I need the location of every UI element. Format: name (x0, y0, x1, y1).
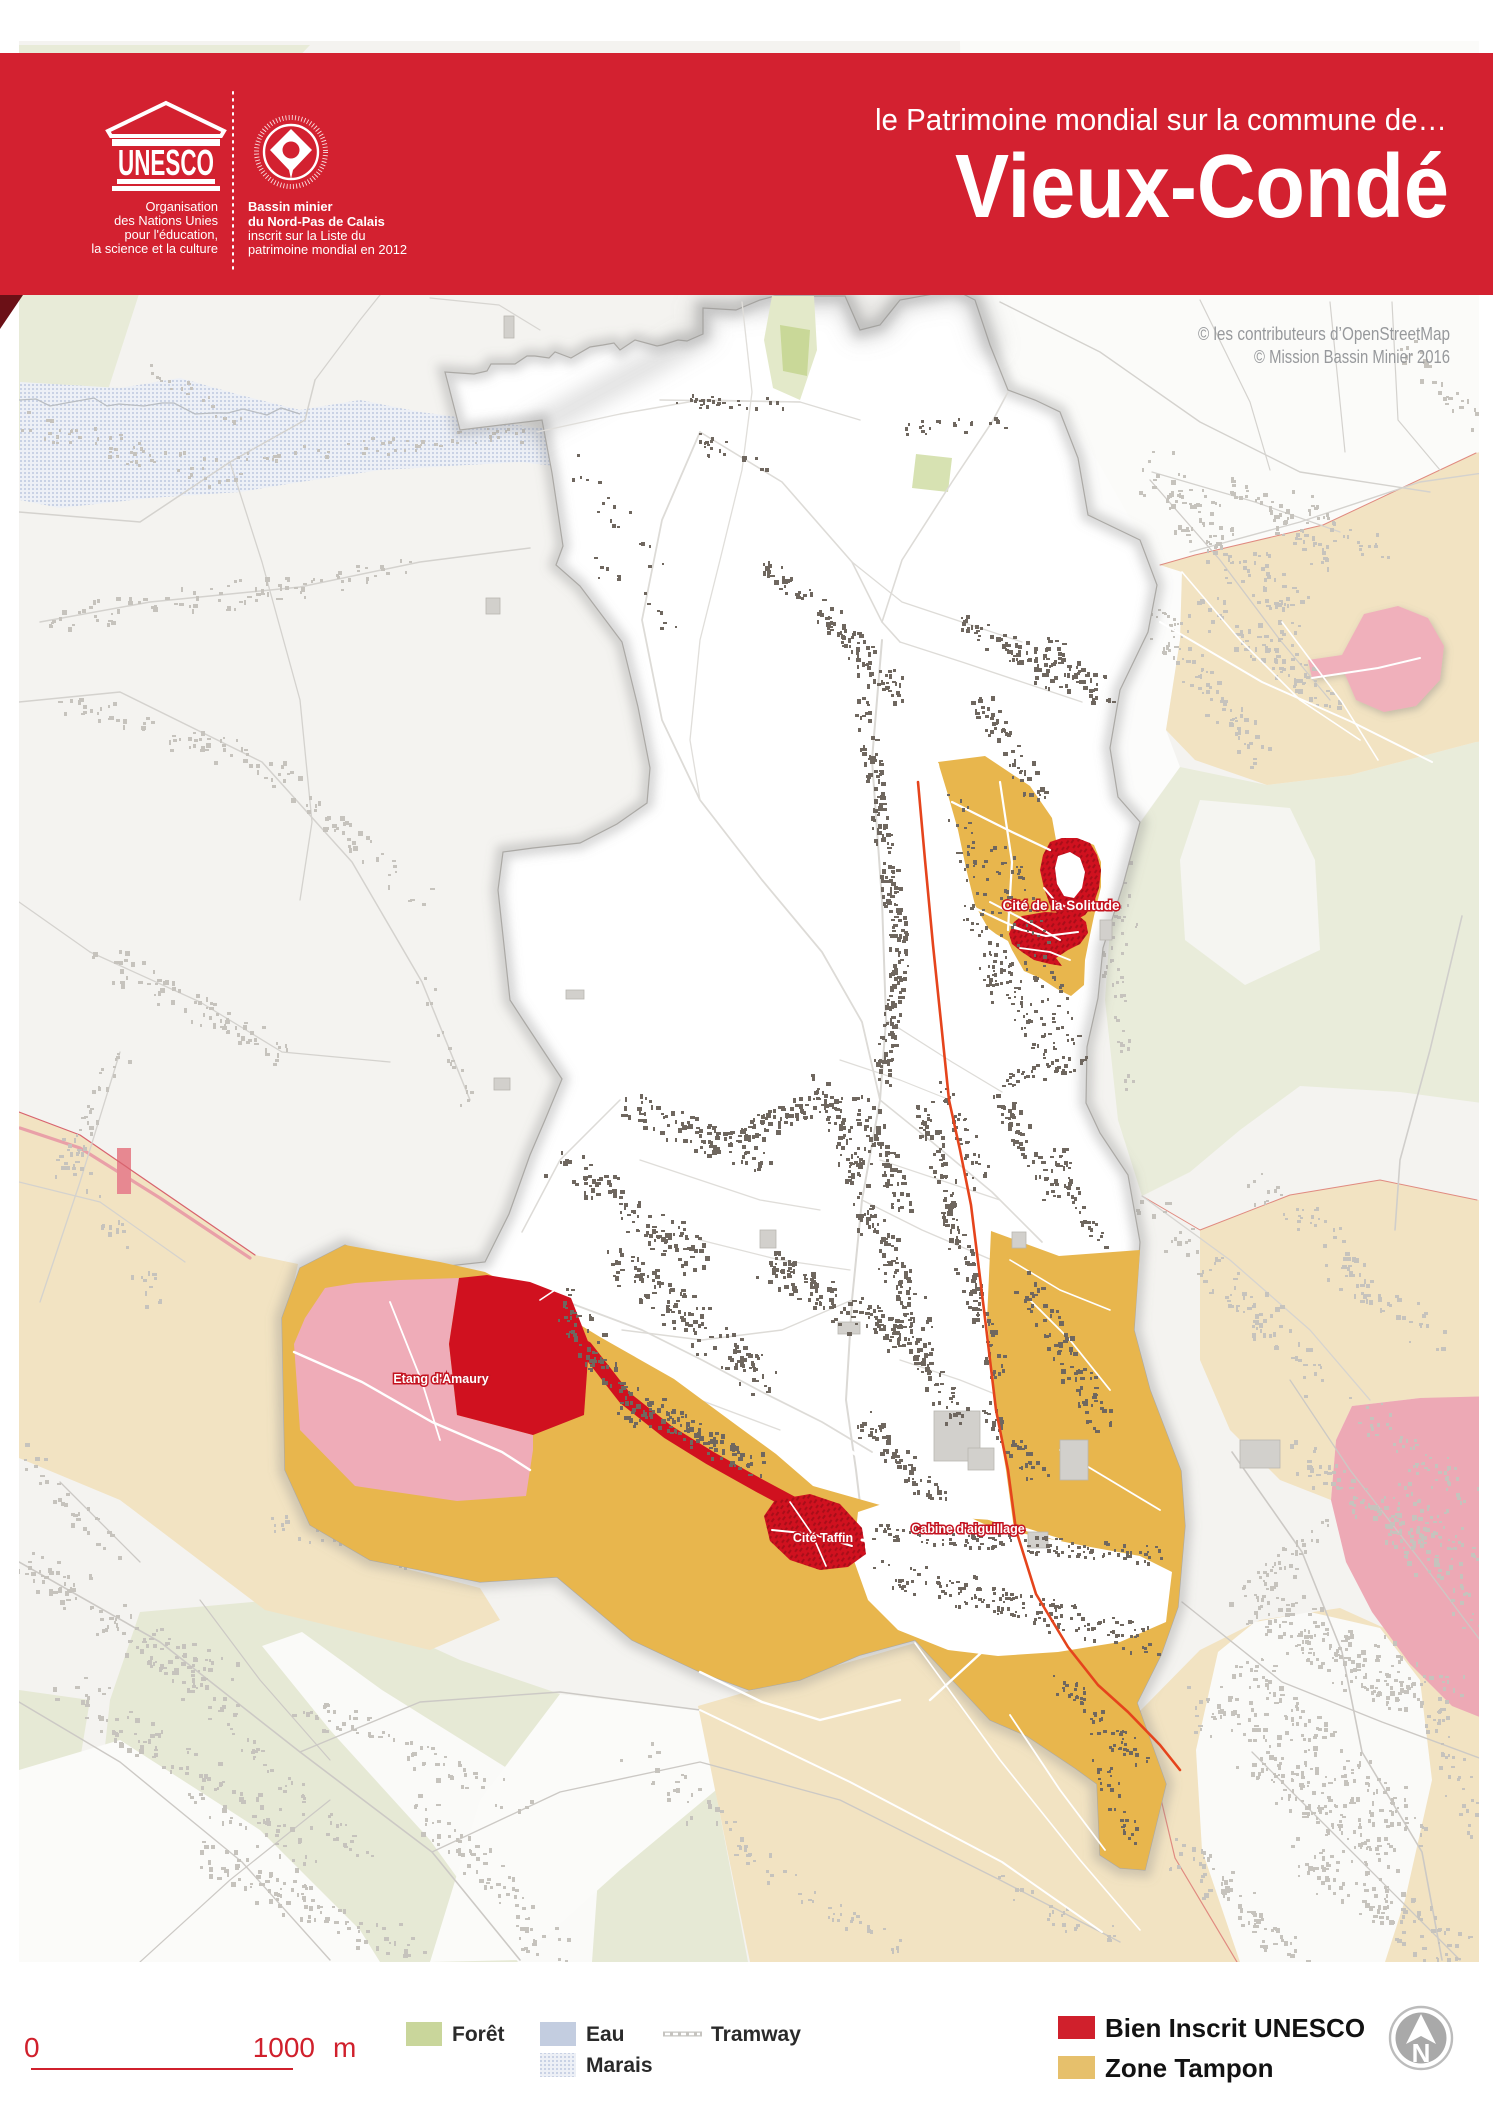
svg-text:des Nations Unies: des Nations Unies (114, 213, 218, 228)
svg-text:N: N (1412, 2038, 1431, 2068)
svg-text:Cabine d'aiguillage: Cabine d'aiguillage (911, 1522, 1024, 1536)
svg-text:1000: 1000 (253, 2032, 315, 2063)
svg-text:inscrit sur la Liste du: inscrit sur la Liste du (248, 228, 366, 243)
svg-text:Tramway: Tramway (711, 2023, 801, 2046)
svg-text:pour l'éducation,: pour l'éducation, (124, 227, 218, 242)
svg-text:Bassin minier: Bassin minier (248, 199, 333, 214)
svg-text:Eau: Eau (586, 2023, 625, 2046)
svg-text:UNESCO: UNESCO (118, 142, 214, 183)
svg-text:Zone Tampon: Zone Tampon (1105, 2053, 1274, 2083)
svg-text:Etang d'Amaury: Etang d'Amaury (393, 1372, 488, 1386)
svg-text:patrimoine mondial en 2012: patrimoine mondial en 2012 (248, 242, 407, 257)
svg-text:© les contributeurs d’OpenStre: © les contributeurs d’OpenStreetMap (1198, 324, 1450, 344)
svg-text:© Mission Bassin Minier 2016: © Mission Bassin Minier 2016 (1254, 347, 1450, 367)
svg-text:Forêt: Forêt (452, 2023, 505, 2046)
svg-text:du Nord-Pas de Calais: du Nord-Pas de Calais (248, 214, 385, 229)
svg-text:Marais: Marais (586, 2054, 653, 2077)
svg-text:Organisation: Organisation (145, 199, 218, 214)
svg-text:m: m (333, 2032, 356, 2063)
svg-text:le Patrimoine mondial sur la c: le Patrimoine mondial sur la commune de… (875, 102, 1447, 137)
svg-text:Bien Inscrit UNESCO: Bien Inscrit UNESCO (1105, 2013, 1365, 2043)
svg-text:Vieux-Condé: Vieux-Condé (955, 137, 1449, 237)
svg-text:0: 0 (24, 2032, 40, 2063)
svg-text:Cité de la Solitude: Cité de la Solitude (1002, 898, 1120, 913)
svg-text:la science et la culture: la science et la culture (91, 241, 218, 256)
svg-text:Cité Taffin: Cité Taffin (793, 1531, 853, 1545)
